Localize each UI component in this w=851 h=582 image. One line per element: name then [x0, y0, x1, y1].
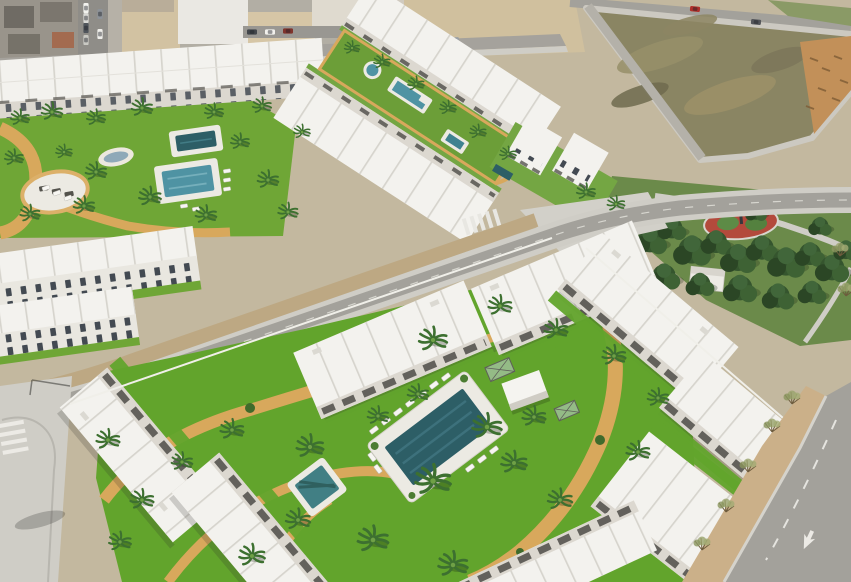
sun-lounger	[223, 178, 231, 183]
car-icon	[97, 9, 102, 19]
aerial-development-render	[0, 0, 851, 582]
car-icon	[97, 29, 102, 39]
car-icon	[83, 3, 88, 13]
aerial-scene	[0, 0, 851, 582]
white-building	[178, 0, 248, 44]
car-icon	[247, 29, 257, 34]
sun-lounger	[180, 204, 188, 209]
car-icon	[83, 23, 88, 33]
car-icon	[690, 6, 700, 12]
car-icon	[83, 35, 88, 45]
car-icon	[265, 29, 275, 34]
car-icon	[283, 28, 293, 33]
sun-lounger	[223, 169, 231, 174]
sun-lounger	[223, 187, 231, 192]
car-icon	[83, 13, 88, 23]
terracotta-roof	[52, 32, 74, 48]
town-street	[78, 0, 108, 60]
car-icon	[751, 19, 761, 25]
